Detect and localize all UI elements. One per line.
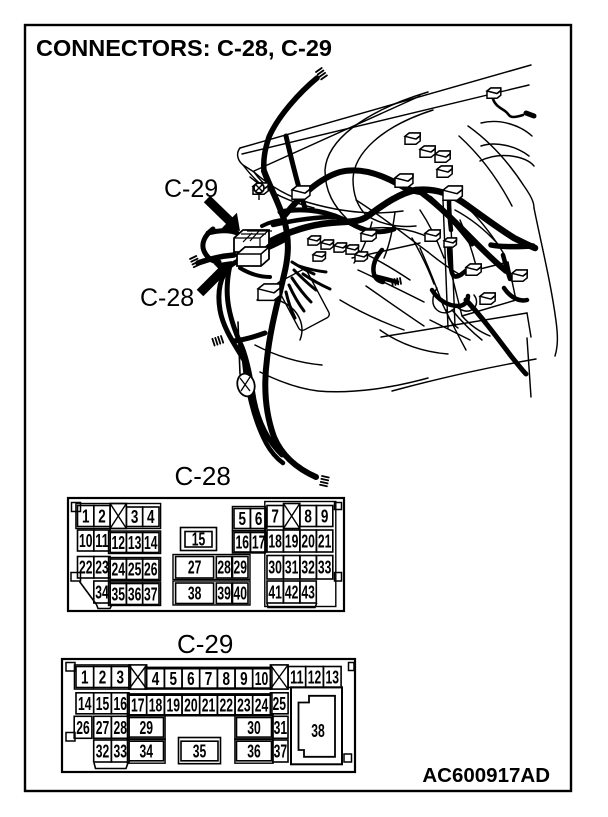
svg-text:35: 35 — [193, 742, 207, 762]
svg-text:C-29: C-29 — [177, 629, 233, 659]
svg-text:39: 39 — [217, 584, 231, 604]
svg-text:CONNECTORS: C-28, C-29: CONNECTORS: C-28, C-29 — [36, 35, 332, 61]
svg-text:5: 5 — [169, 669, 177, 689]
svg-text:41: 41 — [268, 583, 282, 603]
svg-text:15: 15 — [192, 530, 206, 550]
svg-text:12: 12 — [308, 668, 322, 688]
svg-text:29: 29 — [140, 718, 154, 738]
svg-text:38: 38 — [188, 584, 202, 604]
svg-text:C-28: C-28 — [140, 284, 194, 312]
svg-text:8: 8 — [222, 669, 230, 689]
svg-text:7: 7 — [205, 669, 213, 689]
svg-text:24: 24 — [111, 560, 125, 580]
svg-text:28: 28 — [217, 558, 231, 578]
svg-text:23: 23 — [237, 696, 251, 716]
svg-text:11: 11 — [290, 668, 304, 688]
svg-text:38: 38 — [311, 721, 325, 741]
svg-text:17: 17 — [252, 533, 266, 553]
svg-text:6: 6 — [187, 669, 195, 689]
svg-text:14: 14 — [144, 533, 158, 553]
svg-text:20: 20 — [184, 696, 198, 716]
svg-text:40: 40 — [233, 584, 247, 604]
svg-text:21: 21 — [318, 532, 332, 552]
svg-text:2: 2 — [99, 668, 107, 688]
svg-text:34: 34 — [95, 583, 109, 603]
svg-text:12: 12 — [111, 533, 125, 553]
svg-text:43: 43 — [301, 583, 315, 603]
svg-text:36: 36 — [128, 585, 142, 605]
svg-text:22: 22 — [79, 558, 93, 578]
svg-text:8: 8 — [304, 507, 312, 527]
svg-text:21: 21 — [202, 696, 216, 716]
svg-text:7: 7 — [271, 507, 279, 527]
svg-text:3: 3 — [131, 507, 139, 527]
svg-text:1: 1 — [82, 507, 90, 527]
svg-text:6: 6 — [255, 509, 263, 529]
svg-text:4: 4 — [152, 669, 160, 689]
svg-text:30: 30 — [247, 718, 261, 738]
svg-text:10: 10 — [255, 669, 269, 689]
svg-text:C-28: C-28 — [175, 461, 231, 491]
svg-text:3: 3 — [116, 668, 124, 688]
svg-text:31: 31 — [274, 718, 288, 738]
svg-text:23: 23 — [95, 558, 109, 578]
svg-text:30: 30 — [268, 558, 282, 578]
svg-text:15: 15 — [96, 694, 110, 714]
svg-text:13: 13 — [325, 668, 339, 688]
svg-text:27: 27 — [96, 718, 110, 738]
svg-text:33: 33 — [318, 558, 332, 578]
svg-text:22: 22 — [219, 696, 233, 716]
svg-text:16: 16 — [113, 694, 127, 714]
svg-text:27: 27 — [188, 558, 202, 578]
svg-text:14: 14 — [78, 694, 92, 714]
svg-text:9: 9 — [240, 669, 248, 689]
svg-text:4: 4 — [147, 507, 155, 527]
svg-text:18: 18 — [149, 696, 163, 716]
svg-text:24: 24 — [255, 696, 269, 716]
svg-text:17: 17 — [131, 696, 145, 716]
svg-text:36: 36 — [247, 742, 261, 762]
svg-text:9: 9 — [321, 507, 329, 527]
svg-text:AC600917AD: AC600917AD — [422, 764, 550, 787]
svg-text:5: 5 — [238, 509, 246, 529]
svg-text:13: 13 — [128, 533, 142, 553]
svg-text:26: 26 — [76, 718, 90, 738]
svg-text:19: 19 — [285, 532, 299, 552]
svg-text:10: 10 — [79, 531, 93, 551]
svg-text:26: 26 — [144, 560, 158, 580]
svg-text:42: 42 — [285, 583, 299, 603]
svg-text:1: 1 — [81, 668, 89, 688]
svg-text:25: 25 — [272, 694, 286, 714]
svg-text:34: 34 — [140, 742, 154, 762]
svg-text:35: 35 — [111, 585, 125, 605]
svg-text:28: 28 — [113, 718, 127, 738]
svg-text:11: 11 — [95, 531, 109, 551]
svg-text:32: 32 — [96, 742, 110, 762]
svg-text:18: 18 — [268, 532, 282, 552]
svg-text:25: 25 — [128, 560, 142, 580]
svg-text:19: 19 — [166, 696, 180, 716]
svg-text:2: 2 — [98, 507, 106, 527]
svg-text:32: 32 — [301, 558, 315, 578]
svg-text:29: 29 — [233, 558, 247, 578]
svg-text:37: 37 — [144, 585, 158, 605]
svg-text:16: 16 — [235, 533, 249, 553]
svg-text:20: 20 — [301, 532, 315, 552]
svg-text:31: 31 — [285, 558, 299, 578]
svg-text:33: 33 — [113, 742, 127, 762]
svg-text:37: 37 — [274, 742, 288, 762]
